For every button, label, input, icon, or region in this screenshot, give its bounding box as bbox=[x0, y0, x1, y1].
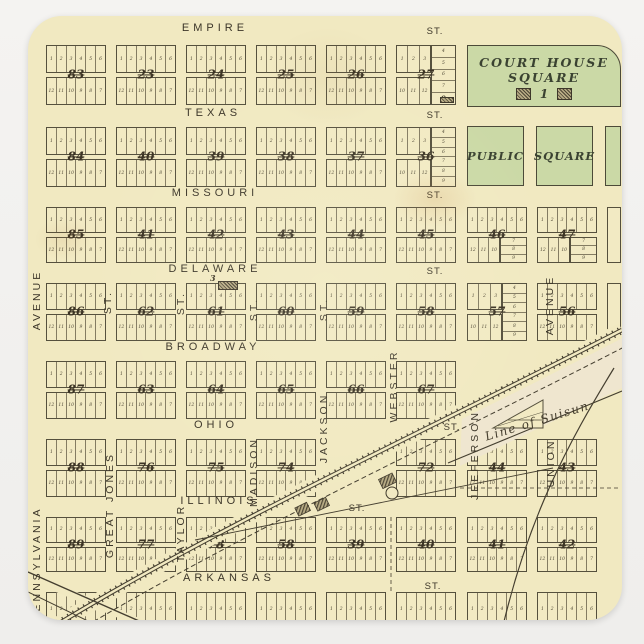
city-block: 123456 bbox=[537, 592, 597, 620]
lot: 12 bbox=[47, 238, 57, 262]
lot: 9 bbox=[146, 471, 156, 496]
lot: 5 bbox=[507, 518, 517, 542]
city-block: 123456 bbox=[116, 592, 176, 620]
city-block: 123456 bbox=[396, 592, 456, 620]
lot-row: 123456 bbox=[537, 592, 597, 620]
lot: 5 bbox=[432, 138, 455, 148]
lot: 8 bbox=[366, 393, 376, 418]
lot: 4 bbox=[356, 593, 366, 620]
lot: 10 bbox=[347, 78, 357, 104]
lot: 9 bbox=[216, 78, 226, 104]
lot: 9 bbox=[426, 471, 436, 496]
lot: 7 bbox=[446, 548, 455, 572]
lot: 6 bbox=[587, 208, 596, 232]
lot: 6 bbox=[96, 46, 105, 72]
lot: 1 bbox=[468, 518, 478, 542]
lot: 11 bbox=[57, 315, 67, 340]
lot: 9 bbox=[356, 160, 366, 186]
city-block-72: 12345612111098772 bbox=[396, 439, 456, 497]
lot: 8 bbox=[296, 471, 306, 496]
lot-row: 123456 bbox=[116, 592, 176, 620]
lot: 9 bbox=[432, 93, 455, 104]
lot: 1 bbox=[397, 128, 408, 154]
lot: 8 bbox=[156, 238, 166, 262]
lot: 7 bbox=[166, 471, 175, 496]
lot: 9 bbox=[426, 548, 436, 572]
lot: 2 bbox=[127, 128, 137, 154]
block-number: 58 bbox=[278, 537, 295, 551]
city-block bbox=[607, 283, 621, 341]
lot: 10 bbox=[207, 78, 217, 104]
lot: 7 bbox=[306, 315, 315, 340]
public-square-west: PUBLIC bbox=[467, 126, 524, 186]
lot: 9 bbox=[76, 393, 86, 418]
lot: 11 bbox=[548, 548, 558, 572]
city-block-43: 12345612111098743 bbox=[537, 439, 597, 497]
city-block-85: 12345612111098785 bbox=[46, 207, 106, 263]
lot: 1 bbox=[327, 593, 337, 620]
lot: 12 bbox=[117, 315, 127, 340]
lot: 2 bbox=[57, 362, 67, 387]
lot: 12 bbox=[397, 238, 407, 262]
public-square-label-right: SQUARE bbox=[534, 149, 595, 163]
city-block-84: 12345612111098784 bbox=[46, 127, 106, 187]
lot: 11 bbox=[267, 393, 277, 418]
lot: 5 bbox=[366, 208, 376, 232]
lot: 12 bbox=[538, 471, 548, 496]
city-block: 123456 bbox=[326, 592, 386, 620]
lot: 6 bbox=[306, 362, 315, 387]
lot: 8 bbox=[571, 246, 596, 254]
lot: 3 bbox=[137, 593, 147, 620]
lot: 5 bbox=[296, 440, 306, 465]
city-block-63: 12345612111098763 bbox=[116, 361, 176, 419]
lot: 5 bbox=[366, 362, 376, 387]
block-number: 39 bbox=[348, 537, 365, 551]
lot: 9 bbox=[76, 471, 86, 496]
lot: 12 bbox=[187, 315, 197, 340]
block-number: 84 bbox=[68, 149, 85, 163]
lot: 2 bbox=[267, 128, 277, 154]
lot: 11 bbox=[127, 548, 137, 572]
lot: 5 bbox=[577, 284, 587, 309]
lot: 7 bbox=[587, 548, 596, 572]
lot: 1 bbox=[538, 284, 548, 309]
lot: 10 bbox=[277, 238, 287, 262]
lot: 9 bbox=[356, 238, 366, 262]
city-block-74: 12345612111098774 bbox=[256, 439, 316, 497]
lot: 2 bbox=[127, 440, 137, 465]
lot: 10 bbox=[277, 393, 287, 418]
lot: 1 bbox=[47, 46, 57, 72]
block-number: 56 bbox=[559, 304, 576, 318]
block-number: 36 bbox=[418, 149, 435, 163]
block-number: 24 bbox=[208, 67, 225, 81]
lot: 3 bbox=[488, 593, 498, 620]
lot: 11 bbox=[57, 548, 67, 572]
lot: 8 bbox=[296, 238, 306, 262]
lot-row: 123456 bbox=[256, 592, 316, 620]
city-block-76: 12345612111098776 bbox=[116, 439, 176, 497]
lot: 9 bbox=[426, 315, 436, 340]
lot: 8 bbox=[577, 315, 587, 340]
lot: 8 bbox=[156, 160, 166, 186]
lot: 8 bbox=[296, 315, 306, 340]
city-block-43: 12345612111098743 bbox=[256, 207, 316, 263]
lot: 7 bbox=[166, 393, 175, 418]
lot: 11 bbox=[127, 238, 137, 262]
lot: 5 bbox=[577, 593, 587, 620]
block-number: 87 bbox=[68, 382, 85, 396]
lot: 1 bbox=[187, 440, 197, 465]
lot: 12 bbox=[257, 238, 267, 262]
lot: 11 bbox=[337, 315, 347, 340]
city-block-44: 12345612111098744 bbox=[467, 439, 527, 497]
lot: 10 bbox=[347, 160, 357, 186]
lot: 10 bbox=[277, 471, 287, 496]
lot: 9 bbox=[426, 238, 436, 262]
lot: 6 bbox=[376, 284, 385, 309]
lot: 1 bbox=[327, 362, 337, 387]
public-square-east: SQUARE bbox=[536, 126, 593, 186]
lot: 7 bbox=[376, 78, 385, 104]
lot: 10 bbox=[558, 315, 568, 340]
lot: 5 bbox=[436, 518, 446, 542]
lot: 9 bbox=[146, 393, 156, 418]
lot: 2 bbox=[57, 518, 67, 542]
public-square-sliver bbox=[605, 126, 621, 186]
city-block-83: 12345612111098783 bbox=[46, 45, 106, 105]
lot: 9 bbox=[356, 78, 366, 104]
lot: 11 bbox=[57, 471, 67, 496]
lot: 5 bbox=[503, 294, 526, 304]
lot: 9 bbox=[286, 548, 296, 572]
lot: 7 bbox=[503, 313, 526, 323]
lot: 5 bbox=[226, 362, 236, 387]
lot: 2 bbox=[57, 593, 67, 620]
lot: 8 bbox=[436, 548, 446, 572]
city-block-57: 12310111245678957 bbox=[467, 283, 527, 341]
lot: 10 bbox=[207, 238, 217, 262]
court-house-square: COURT HOUSE SQUARE 1 bbox=[467, 45, 621, 107]
square-sticker-map: 1234561211109878312345612111098723123456… bbox=[28, 16, 622, 620]
city-block-41: 12345612111098741 bbox=[116, 207, 176, 263]
lot: 6 bbox=[587, 440, 596, 465]
block-number: 41 bbox=[489, 537, 506, 551]
block-number: 65 bbox=[278, 382, 295, 396]
block-number: 26 bbox=[348, 67, 365, 81]
lot: 11 bbox=[127, 78, 137, 104]
lot: 10 bbox=[137, 78, 147, 104]
city-block-42: 12345612111098742 bbox=[537, 517, 597, 572]
lot: 12 bbox=[257, 471, 267, 496]
lot: 9 bbox=[286, 393, 296, 418]
lot: 1 bbox=[47, 440, 57, 465]
lot: 8 bbox=[366, 238, 376, 262]
block-number: 86 bbox=[68, 304, 85, 318]
lot: 5 bbox=[366, 128, 376, 154]
court-house-building-icon bbox=[557, 88, 572, 100]
lot: 7 bbox=[236, 315, 245, 340]
lot: 2 bbox=[57, 128, 67, 154]
lot: 5 bbox=[156, 362, 166, 387]
lot: 10 bbox=[137, 471, 147, 496]
lot: 5 bbox=[296, 593, 306, 620]
lot: 7 bbox=[306, 78, 315, 104]
block-number: 72 bbox=[418, 460, 435, 474]
lot: 2 bbox=[127, 593, 137, 620]
lot: 9 bbox=[76, 238, 86, 262]
lot: 11 bbox=[57, 160, 67, 186]
lot: 5 bbox=[432, 58, 455, 70]
lot: 1 bbox=[468, 284, 479, 309]
lot: 5 bbox=[226, 593, 236, 620]
lot: 6 bbox=[96, 284, 105, 309]
lot: 4 bbox=[503, 284, 526, 294]
lot: 8 bbox=[86, 78, 96, 104]
block-number: 88 bbox=[68, 460, 85, 474]
lot: 6 bbox=[306, 128, 315, 154]
lot: 6 bbox=[587, 284, 596, 309]
lot: 8 bbox=[226, 548, 236, 572]
lot: 1 bbox=[257, 46, 267, 72]
lot: 5 bbox=[86, 284, 96, 309]
lot: 5 bbox=[86, 208, 96, 232]
block-number: 83 bbox=[68, 67, 85, 81]
lot: 6 bbox=[432, 70, 455, 82]
block-number: 25 bbox=[278, 67, 295, 81]
lot: 9 bbox=[497, 471, 507, 496]
lot: 10 bbox=[207, 393, 217, 418]
lot: 12 bbox=[117, 471, 127, 496]
lot: 12 bbox=[327, 548, 337, 572]
lot: 6 bbox=[446, 440, 455, 465]
lot: 7 bbox=[446, 315, 455, 340]
lot: 11 bbox=[407, 315, 417, 340]
lot: 1 bbox=[327, 518, 337, 542]
lot: 6 bbox=[306, 208, 315, 232]
block-number: 63 bbox=[138, 382, 155, 396]
lot: 1 bbox=[187, 128, 197, 154]
lot: 8 bbox=[86, 393, 96, 418]
lot: 10 bbox=[417, 471, 427, 496]
lot: 7 bbox=[306, 238, 315, 262]
lot: 11 bbox=[408, 78, 419, 104]
lot: 9 bbox=[286, 315, 296, 340]
city-block-88: 12345612111098788 bbox=[46, 439, 106, 497]
lot: 8 bbox=[226, 315, 236, 340]
lot: 11 bbox=[337, 393, 347, 418]
lot: 11 bbox=[548, 471, 558, 496]
lot: 2 bbox=[548, 518, 558, 542]
lot: 8 bbox=[226, 471, 236, 496]
city-block-61: 123456121110987361 bbox=[186, 283, 246, 341]
lot: 1 bbox=[47, 518, 57, 542]
lot: 2 bbox=[197, 440, 207, 465]
lot: 10 bbox=[67, 78, 77, 104]
lot: 6 bbox=[236, 208, 245, 232]
lot: 5 bbox=[296, 284, 306, 309]
lot: 2 bbox=[197, 362, 207, 387]
lot: 7 bbox=[306, 471, 315, 496]
lot: 8 bbox=[226, 393, 236, 418]
lot: 2 bbox=[267, 46, 277, 72]
lot: 1 bbox=[468, 593, 478, 620]
city-block bbox=[607, 207, 621, 263]
lot: 7 bbox=[306, 160, 315, 186]
lot: 7 bbox=[446, 393, 455, 418]
block-number: 58 bbox=[418, 304, 435, 318]
lot-row: 123456 bbox=[186, 592, 246, 620]
lot: 1 bbox=[47, 128, 57, 154]
lot: 12 bbox=[327, 238, 337, 262]
lot: 12 bbox=[468, 471, 478, 496]
lot: 10 bbox=[347, 238, 357, 262]
lot: 8 bbox=[366, 315, 376, 340]
lot: 12 bbox=[397, 315, 407, 340]
lot: 11 bbox=[407, 548, 417, 572]
lot: 10 bbox=[137, 548, 147, 572]
lot: 9 bbox=[567, 548, 577, 572]
lot: 6 bbox=[96, 440, 105, 465]
building-icon bbox=[440, 97, 454, 103]
lot: 11 bbox=[407, 471, 417, 496]
lot: 5 bbox=[156, 128, 166, 154]
lot: 8 bbox=[226, 160, 236, 186]
lot: 7 bbox=[96, 238, 105, 262]
lot: 12 bbox=[117, 160, 127, 186]
lot: 11 bbox=[127, 315, 137, 340]
lot: 9 bbox=[503, 332, 526, 341]
lot: 4 bbox=[76, 593, 86, 620]
lot: 9 bbox=[76, 160, 86, 186]
lot: 6 bbox=[446, 208, 455, 232]
block-number: 40 bbox=[138, 149, 155, 163]
city-block-39: 12345612111098739 bbox=[186, 127, 246, 187]
lot: 12 bbox=[47, 78, 57, 104]
lot: 2 bbox=[548, 208, 558, 232]
lot: 7 bbox=[587, 471, 596, 496]
lot: 9 bbox=[567, 471, 577, 496]
lot: 6 bbox=[446, 284, 455, 309]
lot: 12 bbox=[47, 548, 57, 572]
block-number: 27 bbox=[418, 67, 435, 81]
city-block-67: 12345612111098767 bbox=[396, 361, 456, 419]
lot: 5 bbox=[86, 440, 96, 465]
city-block-58: 12345612111098758 bbox=[396, 283, 456, 341]
lot: 2 bbox=[197, 518, 207, 542]
lot: 6 bbox=[236, 128, 245, 154]
lot: 11 bbox=[267, 160, 277, 186]
lot: 1 bbox=[187, 362, 197, 387]
lot: 9 bbox=[146, 315, 156, 340]
lot: 1 bbox=[257, 284, 267, 309]
city-block-66: 12345612111098766 bbox=[326, 361, 386, 419]
lot: 11 bbox=[57, 393, 67, 418]
lot: 6 bbox=[96, 593, 105, 620]
lot: 1 bbox=[257, 518, 267, 542]
lot: 1 bbox=[47, 362, 57, 387]
lot: 9 bbox=[286, 78, 296, 104]
lot: 5 bbox=[226, 46, 236, 72]
block-number: 41 bbox=[138, 227, 155, 241]
block-number: 62 bbox=[138, 304, 155, 318]
lot: 2 bbox=[127, 46, 137, 72]
lot: 9 bbox=[76, 315, 86, 340]
lot: 6 bbox=[236, 593, 245, 620]
lot: 10 bbox=[488, 471, 498, 496]
block-number: 47 bbox=[559, 227, 576, 241]
block-number: 44 bbox=[348, 227, 365, 241]
city-block-89: 12345612111098789 bbox=[46, 517, 106, 572]
city-block-47: 12345612111078947 bbox=[537, 207, 597, 263]
lot: 8 bbox=[296, 548, 306, 572]
lot: 9 bbox=[501, 255, 526, 262]
lot: 8 bbox=[86, 471, 96, 496]
city-block: 123456 bbox=[46, 592, 106, 620]
city-block-87: 12345612111098787 bbox=[46, 361, 106, 419]
city-block-40: 12345612111098740 bbox=[396, 517, 456, 572]
lot: 10 bbox=[67, 160, 77, 186]
lot: 7 bbox=[376, 548, 385, 572]
lot: 12 bbox=[397, 471, 407, 496]
lot: 6 bbox=[96, 208, 105, 232]
lot: 1 bbox=[397, 593, 407, 620]
lot: 5 bbox=[86, 46, 96, 72]
lot: 1 bbox=[257, 362, 267, 387]
lot: 1 bbox=[327, 208, 337, 232]
lot: 12 bbox=[47, 160, 57, 186]
lot: 2 bbox=[57, 284, 67, 309]
lot: 1 bbox=[257, 440, 267, 465]
lot: 1 bbox=[538, 440, 548, 465]
lot: 4 bbox=[286, 593, 296, 620]
lot: 12 bbox=[47, 315, 57, 340]
lot: 9 bbox=[216, 471, 226, 496]
lot: 11 bbox=[407, 238, 417, 262]
block-number: 42 bbox=[208, 227, 225, 241]
lot: 10 bbox=[67, 471, 77, 496]
block-number: 78 bbox=[208, 537, 225, 551]
city-block-46: 12345612111078946 bbox=[467, 207, 527, 263]
lot: 11 bbox=[267, 548, 277, 572]
lot-row: 123456 bbox=[46, 592, 106, 620]
lot: 8 bbox=[156, 548, 166, 572]
lot: 10 bbox=[67, 548, 77, 572]
lot: 1 bbox=[187, 208, 197, 232]
lot: 9 bbox=[216, 315, 226, 340]
lot: 10 bbox=[207, 160, 217, 186]
lot: 11 bbox=[408, 160, 419, 186]
lot: 1 bbox=[47, 284, 57, 309]
city-block-23: 12345612111098723 bbox=[116, 45, 176, 105]
lot: 2 bbox=[337, 518, 347, 542]
lot: 5 bbox=[436, 593, 446, 620]
lot: 6 bbox=[376, 518, 385, 542]
lot: 7 bbox=[432, 81, 455, 93]
lot: 8 bbox=[436, 238, 446, 262]
lot: 7 bbox=[376, 238, 385, 262]
lot: 12 bbox=[257, 160, 267, 186]
lot: 12 bbox=[257, 78, 267, 104]
block-number: 85 bbox=[68, 227, 85, 241]
lot: 5 bbox=[507, 440, 517, 465]
lot: 5 bbox=[296, 362, 306, 387]
building-icon bbox=[218, 281, 238, 290]
lot: 11 bbox=[127, 160, 137, 186]
lot: 6 bbox=[503, 303, 526, 313]
lot: 12 bbox=[327, 78, 337, 104]
